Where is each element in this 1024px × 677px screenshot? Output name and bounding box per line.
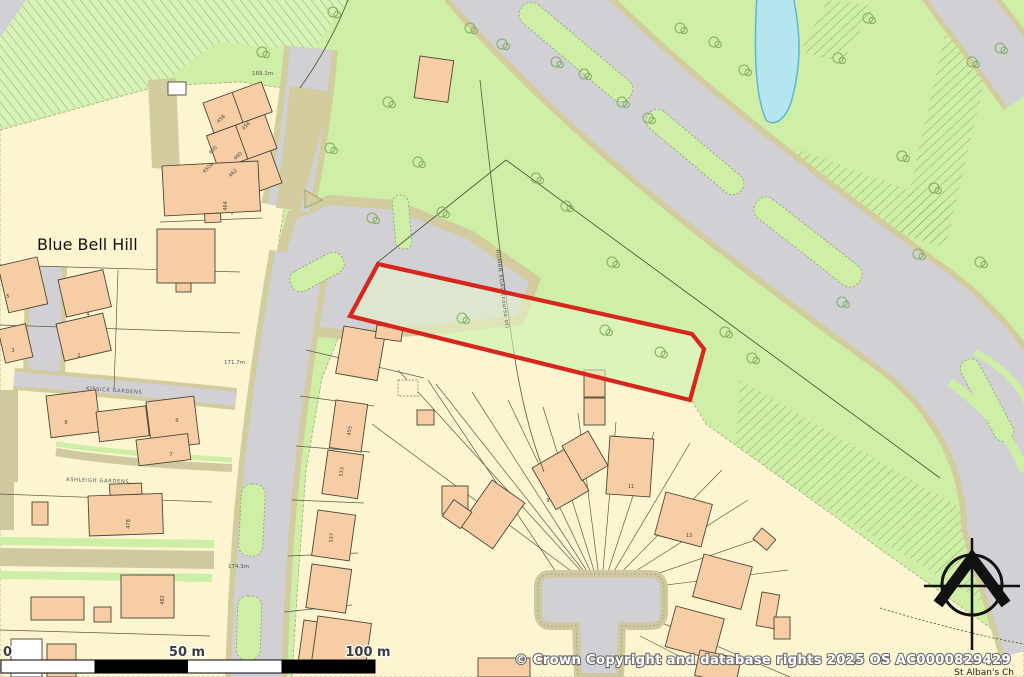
house-number-label: 9	[546, 498, 549, 504]
building	[176, 283, 191, 292]
building-8	[46, 390, 101, 438]
scale-label-zero: 0	[3, 645, 12, 660]
scale-label-100m: 100 m	[345, 645, 390, 660]
map-canvas: Blue Bell Hill 169.1m 171.7m 174.3m KISS…	[0, 0, 1024, 677]
building	[584, 398, 605, 425]
spot-height-label: 174.3m	[228, 564, 249, 570]
building	[306, 564, 352, 613]
spot-height-label: 171.7m	[224, 360, 245, 366]
site-location-map: Blue Bell Hill 169.1m 171.7m 174.3m KISS…	[0, 0, 1024, 677]
house-number-label: 8	[64, 420, 67, 426]
house-number-label: 4	[86, 312, 89, 318]
house-number-label: 455	[346, 426, 353, 436]
building	[414, 56, 454, 102]
house-number-label: 478	[126, 519, 132, 529]
building	[774, 617, 790, 639]
building	[157, 229, 215, 283]
house-number-label: 482	[160, 595, 166, 605]
house-number-label: 2	[77, 353, 80, 359]
building-482	[121, 575, 174, 618]
scale-label-50m: 50 m	[169, 645, 205, 660]
building	[96, 406, 149, 442]
building	[417, 410, 434, 425]
house-number-label: 11	[628, 484, 634, 490]
house-number-label: 537	[328, 533, 335, 543]
glasshouse	[398, 380, 418, 396]
house-number-label: 3	[11, 348, 14, 354]
spot-height-label: 169.1m	[252, 71, 273, 77]
house-number-label: 9	[175, 418, 178, 424]
building	[168, 82, 186, 95]
building	[32, 502, 48, 525]
house-number-label: 13	[686, 533, 692, 539]
house-number-label: 533	[338, 467, 345, 477]
house-number-label: 7	[169, 452, 172, 458]
copyright-notice: © Crown Copyright and database rights 20…	[514, 653, 1011, 668]
building	[31, 597, 84, 620]
building	[94, 607, 111, 622]
house-number-label: 5	[6, 294, 9, 300]
area-name-label: Blue Bell Hill	[37, 235, 138, 254]
church-label: St Alban's Ch	[954, 668, 1014, 677]
house-number-label: 464	[223, 201, 229, 211]
